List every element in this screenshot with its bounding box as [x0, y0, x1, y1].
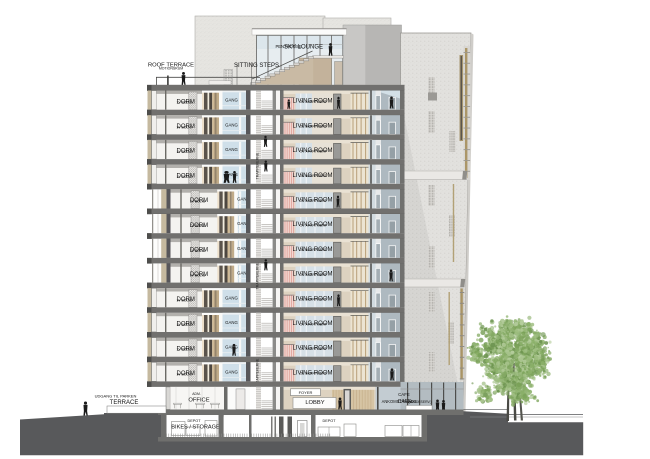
svg-text:1V BOLIG: 1V BOLIG [176, 323, 192, 327]
svg-text:CAFE: CAFE [398, 392, 410, 397]
svg-text:2V APARTMENT: 2V APARTMENT [300, 298, 327, 302]
svg-text:GANG: GANG [225, 345, 238, 350]
svg-text:SITTING STEPS: SITTING STEPS [234, 63, 279, 69]
svg-text:ADM.: ADM. [192, 392, 201, 396]
svg-text:2V APARTMENT: 2V APARTMENT [300, 174, 327, 178]
svg-text:UDGANG TIL PARKEN: UDGANG TIL PARKEN [95, 394, 137, 399]
svg-text:GANG: GANG [225, 320, 238, 325]
svg-text:DEPOT: DEPOT [187, 419, 201, 423]
svg-text:OFFICE: OFFICE [188, 398, 209, 404]
svg-text:1V BOLIG: 1V BOLIG [176, 150, 192, 154]
svg-text:1V BOLIG: 1V BOLIG [190, 200, 206, 204]
svg-text:MOTIONSRUM: MOTIONSRUM [159, 67, 183, 71]
svg-text:1V BOLIG: 1V BOLIG [176, 175, 192, 179]
svg-text:GANG: GANG [225, 147, 238, 152]
svg-text:DEPOT: DEPOT [322, 419, 336, 423]
svg-text:1V BOLIG: 1V BOLIG [176, 298, 192, 302]
svg-text:2V APARTMENT: 2V APARTMENT [300, 273, 327, 277]
svg-text:TERRACE: TERRACE [110, 400, 139, 406]
svg-text:2V APARTMENT: 2V APARTMENT [300, 199, 327, 203]
svg-text:1V BOLIG: 1V BOLIG [190, 274, 206, 278]
svg-text:BIKES / STORAGE: BIKES / STORAGE [171, 425, 220, 431]
svg-text:1V BOLIG: 1V BOLIG [176, 348, 192, 352]
svg-text:GANG: GANG [225, 295, 238, 300]
svg-text:1V BOLIG: 1V BOLIG [190, 249, 206, 253]
svg-text:TRAPPEKERNE: TRAPPEKERNE [256, 152, 260, 179]
svg-text:TRAPPEKERNE: TRAPPEKERNE [256, 262, 260, 289]
svg-text:1V BOLIG: 1V BOLIG [176, 125, 192, 129]
svg-text:GANG: GANG [225, 98, 238, 103]
svg-text:(M/UDESERV.): (M/UDESERV.) [409, 400, 432, 404]
svg-text:1V BOLIG: 1V BOLIG [176, 372, 192, 376]
svg-text:TRAPPEKERNE: TRAPPEKERNE [256, 358, 260, 385]
svg-text:LOBBY: LOBBY [305, 400, 324, 406]
svg-text:2V APARTMENT: 2V APARTMENT [300, 248, 327, 252]
svg-text:1V BOLIG: 1V BOLIG [176, 101, 192, 105]
svg-text:2V APARTMENT: 2V APARTMENT [300, 224, 327, 228]
svg-text:PENTHOUSE: PENTHOUSE [275, 44, 301, 49]
svg-text:GANG: GANG [225, 122, 238, 127]
svg-text:FOYER: FOYER [299, 390, 313, 395]
svg-text:2V APARTMENT: 2V APARTMENT [300, 149, 327, 153]
svg-text:2V APARTMENT: 2V APARTMENT [300, 347, 327, 351]
svg-text:1V BOLIG: 1V BOLIG [190, 224, 206, 228]
svg-text:2V APARTMENT: 2V APARTMENT [300, 322, 327, 326]
svg-text:2V APARTMENT: 2V APARTMENT [300, 125, 327, 129]
svg-text:GANG: GANG [225, 369, 238, 374]
svg-text:2V APARTMENT: 2V APARTMENT [300, 372, 327, 376]
svg-text:2V APARTMENT: 2V APARTMENT [300, 100, 327, 104]
